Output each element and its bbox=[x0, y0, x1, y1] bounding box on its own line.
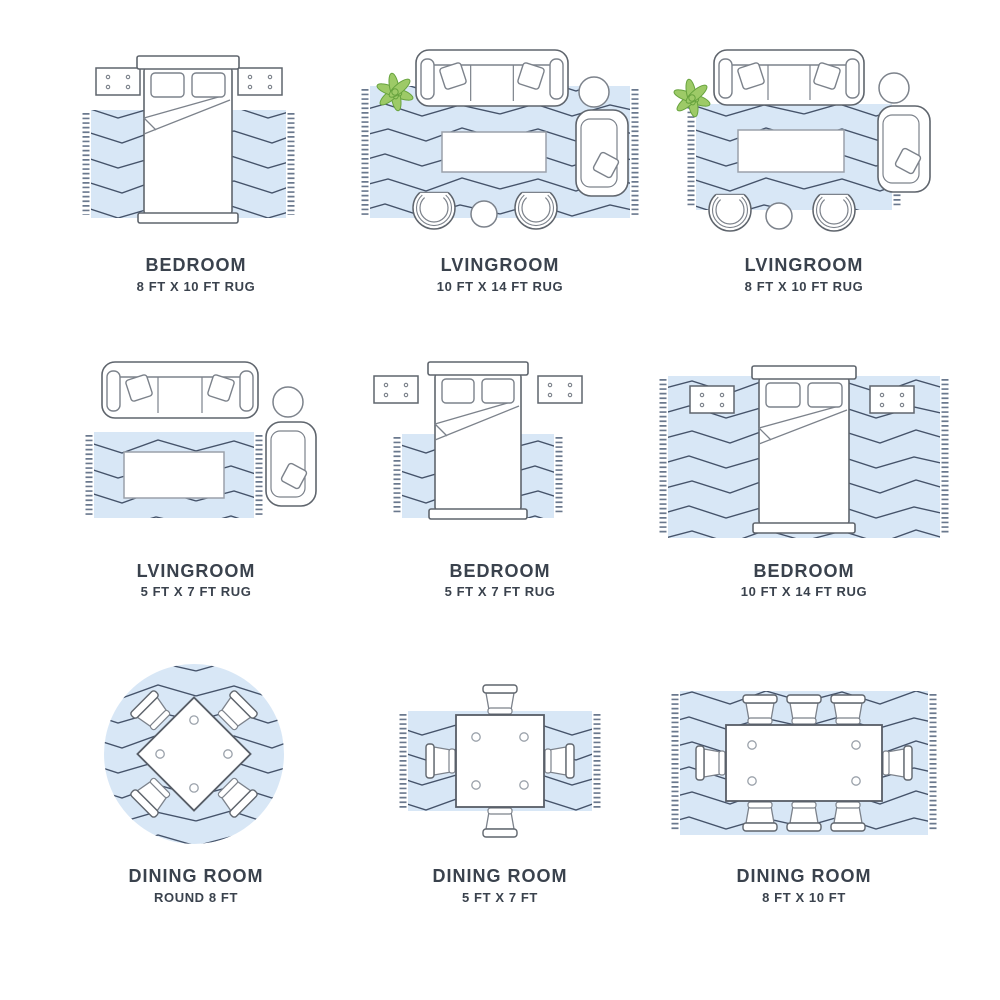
rug-guide-cell: BEDROOM 5 FT X 7 FT RUG bbox=[348, 350, 652, 600]
room-label: DINING ROOM bbox=[348, 865, 652, 888]
diagram-livingroom-10x14 bbox=[350, 44, 650, 244]
diagram-dining-8x10 bbox=[654, 655, 954, 855]
diagram-livingroom-8x10 bbox=[654, 44, 954, 244]
size-label: 5 FT X 7 FT RUG bbox=[44, 584, 348, 599]
caption: BEDROOM 8 FT X 10 FT RUG bbox=[44, 254, 348, 294]
diagram-bedroom-10x14 bbox=[654, 350, 954, 550]
diagram-bedroom-8x10 bbox=[46, 44, 346, 244]
size-label: 8 FT X 10 FT bbox=[652, 890, 956, 905]
caption: BEDROOM 5 FT X 7 FT RUG bbox=[348, 560, 652, 600]
caption: LVINGROOM 8 FT X 10 FT RUG bbox=[652, 254, 956, 294]
room-label: LVINGROOM bbox=[44, 560, 348, 583]
caption: BEDROOM 10 FT X 14 FT RUG bbox=[652, 560, 956, 600]
room-label: LVINGROOM bbox=[652, 254, 956, 277]
rug-guide-cell: LVINGROOM 5 FT X 7 FT RUG bbox=[44, 350, 348, 600]
size-label: 5 FT X 7 FT bbox=[348, 890, 652, 905]
room-label: BEDROOM bbox=[44, 254, 348, 277]
rug-guide-cell: LVINGROOM 8 FT X 10 FT RUG bbox=[652, 44, 956, 294]
diagram-bedroom-5x7 bbox=[350, 350, 650, 550]
diagram-livingroom-5x7 bbox=[46, 350, 346, 550]
room-label: DINING ROOM bbox=[652, 865, 956, 888]
size-label: 8 FT X 10 FT RUG bbox=[44, 279, 348, 294]
diagram-dining-5x7 bbox=[350, 655, 650, 855]
rug-guide-cell: BEDROOM 8 FT X 10 FT RUG bbox=[44, 44, 348, 294]
rug-guide-cell: DINING ROOM 8 FT X 10 FT bbox=[652, 655, 956, 905]
size-label: 5 FT X 7 FT RUG bbox=[348, 584, 652, 599]
rug-guide-cell: DINING ROOM 5 FT X 7 FT bbox=[348, 655, 652, 905]
rug-size-guide-grid: BEDROOM 8 FT X 10 FT RUG LVINGROOM 10 FT… bbox=[44, 0, 956, 905]
size-label: ROUND 8 FT bbox=[44, 890, 348, 905]
caption: LVINGROOM 5 FT X 7 FT RUG bbox=[44, 560, 348, 600]
caption: DINING ROOM ROUND 8 FT bbox=[44, 865, 348, 905]
size-label: 8 FT X 10 FT RUG bbox=[652, 279, 956, 294]
rug-guide-cell: LVINGROOM 10 FT X 14 FT RUG bbox=[348, 44, 652, 294]
size-label: 10 FT X 14 FT RUG bbox=[652, 584, 956, 599]
room-label: LVINGROOM bbox=[348, 254, 652, 277]
caption: LVINGROOM 10 FT X 14 FT RUG bbox=[348, 254, 652, 294]
room-label: DINING ROOM bbox=[44, 865, 348, 888]
caption: DINING ROOM 8 FT X 10 FT bbox=[652, 865, 956, 905]
diagram-dining-round bbox=[46, 655, 346, 855]
rug-guide-cell: DINING ROOM ROUND 8 FT bbox=[44, 655, 348, 905]
caption: DINING ROOM 5 FT X 7 FT bbox=[348, 865, 652, 905]
room-label: BEDROOM bbox=[652, 560, 956, 583]
room-label: BEDROOM bbox=[348, 560, 652, 583]
size-label: 10 FT X 14 FT RUG bbox=[348, 279, 652, 294]
rug-guide-cell: BEDROOM 10 FT X 14 FT RUG bbox=[652, 350, 956, 600]
